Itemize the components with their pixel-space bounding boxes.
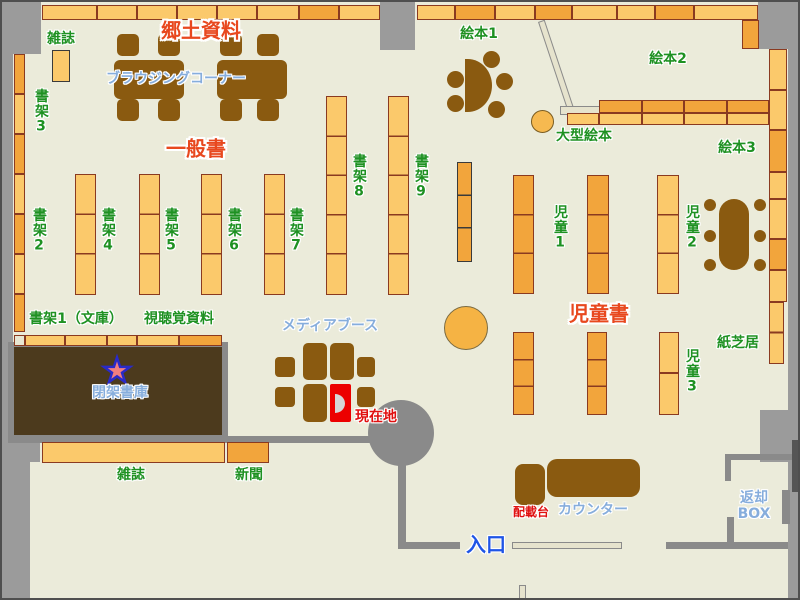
jido1-shelf-upper — [513, 175, 534, 294]
exterior-top-right — [758, 2, 800, 49]
ehon-row-lower — [567, 113, 599, 125]
haisaidai-desk — [515, 464, 545, 505]
label-shoka7: 書架7 — [288, 208, 304, 255]
bunko-row-shelf — [137, 335, 179, 346]
jido2-chair — [704, 259, 716, 271]
left-wall-shelf — [14, 254, 25, 294]
jido2-chair — [754, 230, 766, 242]
label-shoka2: 書架2 — [31, 208, 47, 255]
left-wall-shelf — [14, 294, 25, 332]
media-booth-unit — [303, 343, 327, 380]
library-floor-map: ★雑誌郷土資料ブラウジングコーナー一般書絵本1絵本2絵本3大型絵本書架3書架2書… — [0, 0, 800, 600]
label-shichokaku: 視聴覚資料 — [144, 311, 214, 327]
wall-entrance-left-foot — [398, 542, 460, 549]
label-shinbun: 新聞 — [235, 467, 263, 483]
jido2-chair — [704, 199, 716, 211]
top-wall-shelf — [97, 5, 137, 20]
pillar — [380, 2, 415, 50]
shoka6-shelf — [201, 174, 222, 295]
wall-dark-strip — [792, 440, 800, 492]
round-table — [444, 306, 488, 350]
ehon-row-upper — [642, 100, 684, 113]
ehon-row-upper — [599, 100, 642, 113]
ogata-ehon-stand — [531, 110, 554, 133]
partition-diagonal — [538, 20, 575, 113]
ehon-row-lower — [599, 113, 642, 125]
label-heika-shoko: 閉架書庫 — [92, 385, 148, 401]
browsing-chair — [117, 99, 139, 121]
label-shoka5: 書架5 — [163, 208, 179, 255]
media-booth-seat — [275, 387, 295, 407]
shoka7-shelf — [264, 174, 285, 295]
label-shoka9: 書架9 — [413, 154, 429, 201]
left-wall-shelf — [14, 54, 25, 94]
label-ehon1: 絵本1 — [460, 26, 498, 42]
browsing-chair — [117, 34, 139, 56]
label-shoka4: 書架4 — [100, 208, 116, 255]
label-shoka1-bunko: 書架1（文庫） — [29, 311, 123, 327]
bunko-row-shelf — [107, 335, 137, 346]
center-small-shelf — [457, 162, 472, 262]
ehon1-chair — [447, 71, 464, 88]
right-wall-shelf — [769, 239, 787, 270]
media-booth-seat — [275, 357, 295, 377]
browsing-chair — [158, 99, 180, 121]
top-wall-shelf — [417, 5, 455, 20]
browsing-chair — [257, 99, 279, 121]
ehon1-chair — [496, 73, 513, 90]
top-wall-shelf — [617, 5, 655, 20]
top-wall-shelf — [655, 5, 694, 20]
jido-mid-shelf-upper — [587, 175, 609, 294]
shoka4-shelf — [75, 174, 96, 295]
right-wall-shelf — [769, 49, 787, 90]
label-henkyaku-box: 返却BOX — [728, 490, 780, 522]
browsing-chair — [220, 99, 242, 121]
shinbun-shelf — [227, 442, 269, 463]
right-wall-shelf — [769, 199, 787, 239]
jido2-chair — [754, 199, 766, 211]
top-wall-shelf — [694, 5, 758, 20]
media-booth-unit — [303, 384, 327, 422]
wall-returnbox-notch — [782, 490, 790, 524]
shoka5-shelf — [139, 174, 160, 295]
ehon-row-lower — [727, 113, 769, 125]
exterior-left-bottom — [2, 462, 30, 600]
label-shoka8: 書架8 — [351, 154, 367, 201]
zasshi-wall-shelf — [52, 50, 70, 82]
left-wall-shelf — [14, 94, 25, 134]
ehon-row-upper — [684, 100, 727, 113]
top-wall-shelf — [299, 5, 339, 20]
media-booth-seat — [357, 357, 375, 377]
jido2-chair — [704, 230, 716, 242]
top-wall-shelf — [495, 5, 535, 20]
top-wall-shelf — [455, 5, 495, 20]
label-media-booth: メディアブース — [282, 318, 378, 334]
left-wall-shelf — [14, 174, 25, 214]
jido2-chair — [754, 259, 766, 271]
label-genzaichi: 現在地 — [355, 409, 397, 425]
label-jido3: 児童3 — [684, 349, 700, 396]
media-booth-unit — [330, 343, 354, 380]
label-jido1: 児童1 — [552, 205, 568, 252]
jido-mid-shelf-lower — [587, 332, 607, 415]
label-shoka6: 書架6 — [226, 208, 242, 255]
left-wall-shelf — [14, 214, 25, 254]
label-kyodo-shiryo: 郷土資料 — [161, 20, 241, 43]
label-jidosho: 児童書 — [569, 303, 629, 326]
jido1-shelf-lower — [513, 332, 534, 415]
jido3-shelf — [659, 332, 679, 415]
top-corner-shelf — [742, 20, 759, 49]
right-wall-shelf — [769, 90, 787, 130]
right-wall-shelf — [769, 130, 787, 172]
label-ippansho: 一般書 — [166, 138, 226, 161]
label-zasshi-bottom: 雑誌 — [117, 467, 145, 483]
label-ehon2: 絵本2 — [649, 51, 687, 67]
label-browsing-corner: ブラウジングコーナー — [106, 71, 246, 87]
door-tick — [519, 585, 526, 600]
shoka8-shelf — [326, 96, 347, 295]
label-haisaidai: 配載台 — [513, 506, 549, 520]
label-kamishibai: 紙芝居 — [717, 335, 759, 351]
bunko-row-shelf — [65, 335, 107, 346]
jido2-table — [719, 199, 749, 270]
entrance-threshold — [512, 542, 622, 549]
wall-entrance-right — [666, 542, 788, 549]
right-wall-shelf-kamishibai — [769, 302, 784, 364]
label-shoka3: 書架3 — [33, 89, 49, 136]
ehon-row-lower — [684, 113, 727, 125]
top-wall-shelf — [257, 5, 299, 20]
label-zasshi-top: 雑誌 — [47, 31, 75, 47]
label-counter: カウンター — [558, 502, 628, 518]
label-jido2: 児童2 — [684, 205, 700, 252]
wall-vertical-entrance-left — [398, 464, 406, 549]
top-wall-shelf — [535, 5, 572, 20]
bunko-row-shelf — [25, 335, 65, 346]
label-ogata-ehon: 大型絵本 — [556, 128, 612, 144]
label-ehon3: 絵本3 — [718, 140, 756, 156]
ehon1-chair — [447, 95, 464, 112]
ehon1-chair — [488, 101, 505, 118]
counter-desk — [547, 459, 640, 497]
top-wall-shelf — [339, 5, 380, 20]
top-wall-shelf — [42, 5, 97, 20]
browsing-chair — [257, 34, 279, 56]
label-iriguchi: 入口 — [466, 534, 506, 557]
zasshi-bottom-shelf — [42, 442, 225, 463]
ehon-row-upper — [727, 100, 769, 113]
ehon1-chair — [483, 51, 500, 68]
left-wall-shelf — [14, 134, 25, 174]
ehon-row-lower — [642, 113, 684, 125]
media-booth-seat — [357, 387, 375, 407]
jido2-shelf — [657, 175, 679, 294]
right-wall-shelf — [769, 172, 787, 199]
top-wall-shelf — [572, 5, 617, 20]
right-wall-shelf — [769, 270, 787, 302]
wall-returnbox-top — [725, 454, 792, 460]
bunko-row-shelf — [179, 335, 222, 346]
shoka9-shelf — [388, 96, 409, 295]
bunko-row-shelf — [14, 335, 25, 346]
